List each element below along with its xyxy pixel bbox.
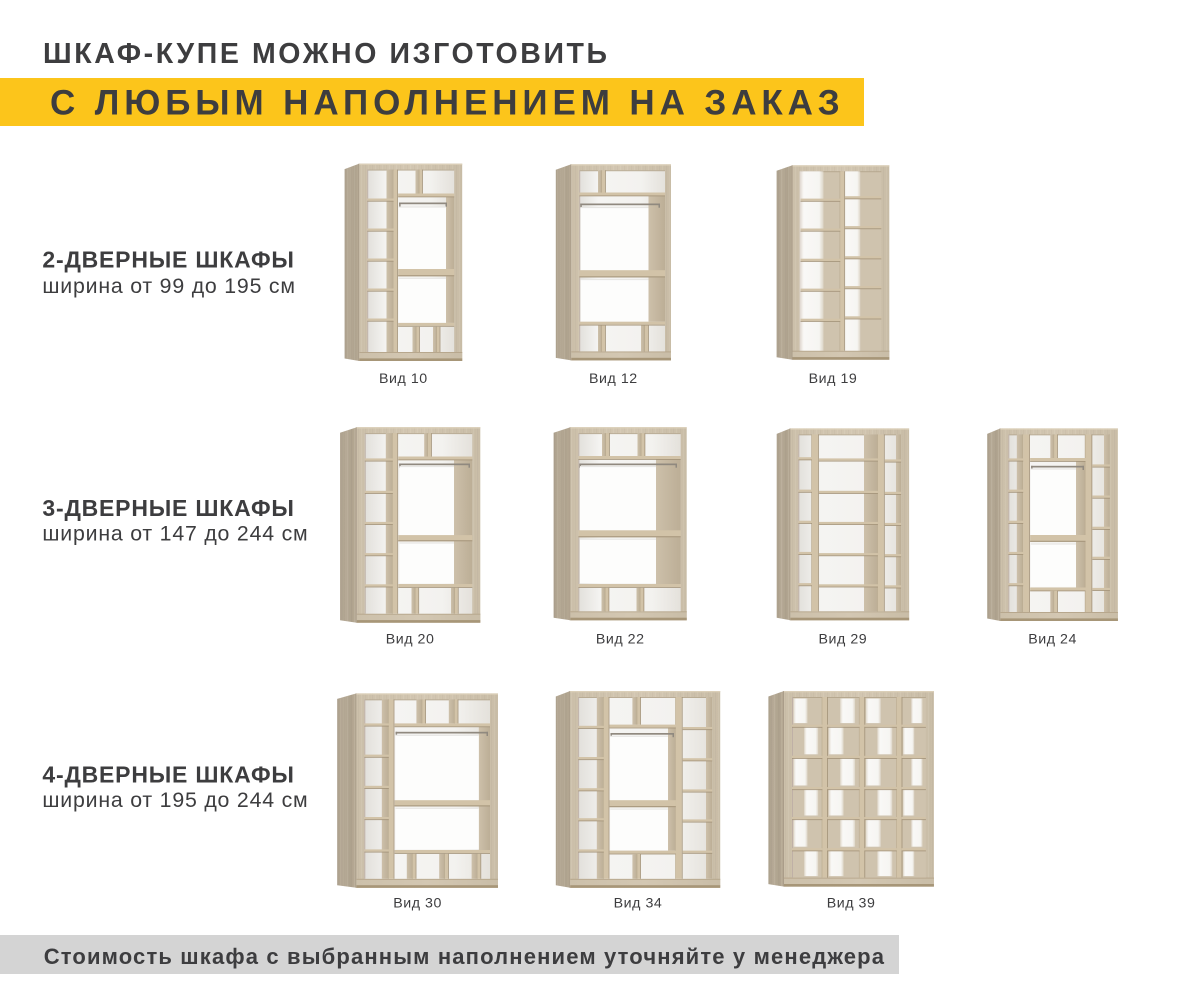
svg-text:Вид 20: Вид 20 — [386, 631, 435, 647]
svg-text:2-ДВЕРНЫЕ ШКАФЫ: 2-ДВЕРНЫЕ ШКАФЫ — [42, 247, 294, 273]
svg-text:Вид 10: Вид 10 — [379, 371, 428, 387]
svg-text:ШКАФ-КУПЕ МОЖНО ИЗГОТОВИТЬ: ШКАФ-КУПЕ МОЖНО ИЗГОТОВИТЬ — [43, 38, 610, 70]
svg-text:Вид 29: Вид 29 — [819, 631, 868, 647]
svg-text:Вид 19: Вид 19 — [809, 371, 858, 387]
svg-text:Вид 24: Вид 24 — [1028, 631, 1077, 647]
svg-text:Стоимость шкафа с выбранным на: Стоимость шкафа с выбранным наполнением … — [44, 944, 885, 969]
svg-text:Вид 12: Вид 12 — [589, 371, 638, 387]
svg-text:Вид 34: Вид 34 — [614, 895, 663, 911]
svg-text:С ЛЮБЫМ НАПОЛНЕНИЕМ НА ЗАКАЗ: С ЛЮБЫМ НАПОЛНЕНИЕМ НА ЗАКАЗ — [50, 84, 845, 123]
svg-text:Вид 39: Вид 39 — [827, 895, 876, 911]
svg-text:3-ДВЕРНЫЕ ШКАФЫ: 3-ДВЕРНЫЕ ШКАФЫ — [42, 495, 294, 521]
svg-text:Вид 30: Вид 30 — [393, 895, 442, 911]
svg-text:ширина от 99 до 195 см: ширина от 99 до 195 см — [42, 274, 295, 298]
svg-text:ширина от 147 до 244 см: ширина от 147 до 244 см — [42, 522, 308, 546]
svg-text:Вид 22: Вид 22 — [596, 631, 645, 647]
svg-text:ширина от 195 до 244 см: ширина от 195 до 244 см — [42, 788, 308, 812]
svg-text:4-ДВЕРНЫЕ ШКАФЫ: 4-ДВЕРНЫЕ ШКАФЫ — [42, 761, 294, 787]
